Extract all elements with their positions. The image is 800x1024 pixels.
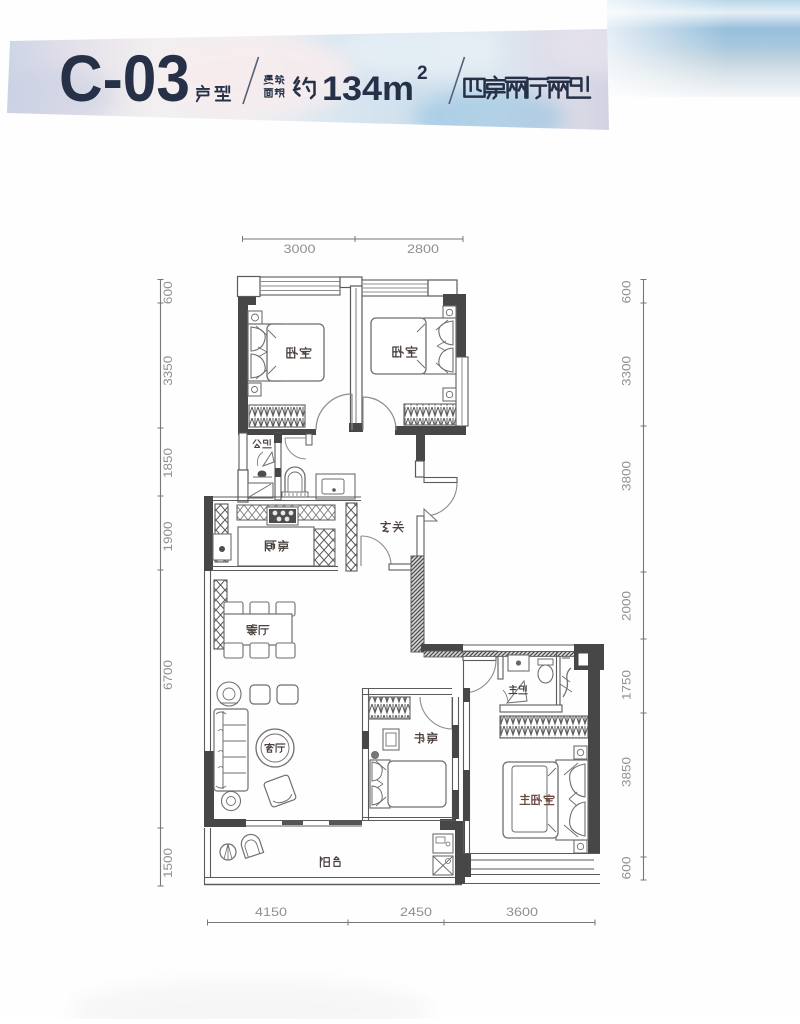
- svg-text:2800: 2800: [407, 242, 439, 256]
- svg-text:6700: 6700: [163, 660, 175, 690]
- svg-text:2000: 2000: [622, 591, 634, 621]
- svg-text:1750: 1750: [622, 670, 634, 700]
- svg-text:134m: 134m: [322, 70, 414, 108]
- svg-text:2: 2: [417, 63, 428, 84]
- svg-text:600: 600: [622, 857, 634, 880]
- svg-text:3000: 3000: [284, 242, 316, 256]
- svg-text:3600: 3600: [506, 905, 538, 919]
- svg-text:4150: 4150: [255, 905, 287, 919]
- svg-text:1900: 1900: [163, 522, 175, 552]
- svg-text:3300: 3300: [622, 356, 634, 386]
- svg-text:1500: 1500: [163, 848, 175, 878]
- svg-text:2450: 2450: [400, 905, 432, 919]
- svg-text:3850: 3850: [622, 757, 634, 787]
- svg-text:3350: 3350: [163, 356, 175, 386]
- svg-text:3800: 3800: [622, 461, 634, 491]
- svg-text:600: 600: [163, 281, 175, 304]
- svg-text:1850: 1850: [163, 448, 175, 478]
- svg-text:600: 600: [622, 281, 634, 304]
- svg-text:C-03: C-03: [59, 41, 190, 115]
